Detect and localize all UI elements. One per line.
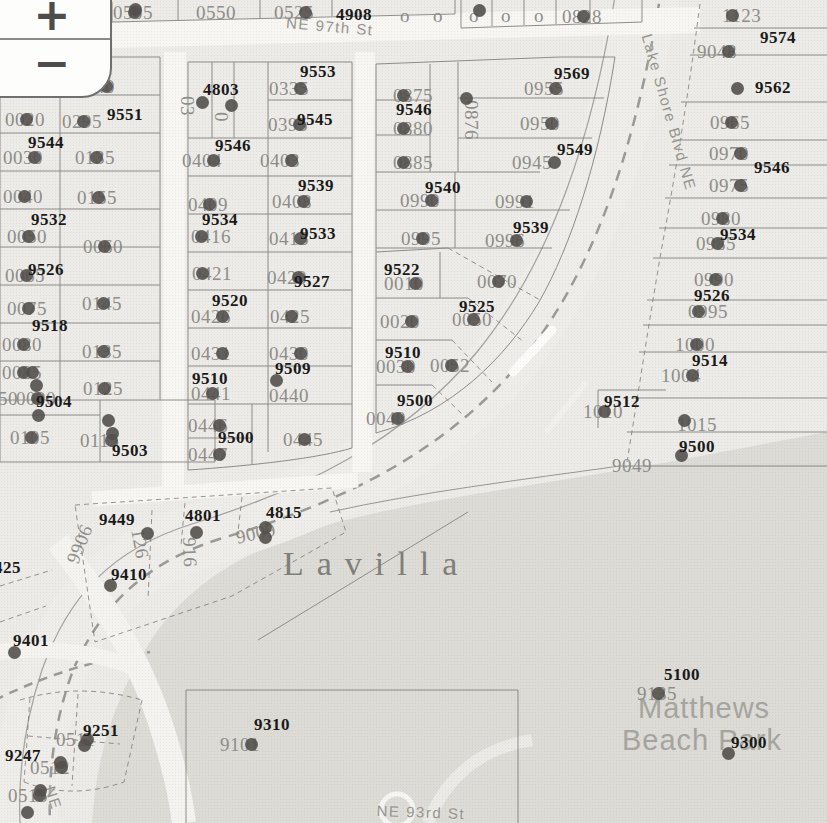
parcel-marker[interactable] <box>285 310 298 323</box>
lot-label-0876: 0876 <box>460 100 482 140</box>
address-label-9546: 9546 <box>396 100 432 120</box>
address-label-9539: 9539 <box>298 176 334 196</box>
parcel-marker[interactable] <box>245 738 258 751</box>
address-label-9514: 9514 <box>692 351 728 371</box>
parcel-marker[interactable] <box>196 267 209 280</box>
address-label-9545: 9545 <box>297 110 333 130</box>
address-label-9551: 9551 <box>107 105 143 125</box>
address-label-9500: 9500 <box>679 437 715 457</box>
parcel-marker[interactable] <box>692 305 705 318</box>
parcel-marker[interactable] <box>445 359 458 372</box>
parcel-marker[interactable] <box>652 687 665 700</box>
parcel-marker[interactable] <box>195 230 208 243</box>
parcel-marker[interactable] <box>473 4 486 17</box>
parcel-marker[interactable] <box>21 806 34 819</box>
parcel-marker[interactable] <box>97 297 110 310</box>
address-label-4908: 4908 <box>336 5 372 25</box>
parcel-marker[interactable] <box>545 117 558 130</box>
parcel-marker[interactable] <box>216 347 229 360</box>
parcel-marker[interactable] <box>22 302 35 315</box>
parcel-marker[interactable] <box>297 195 310 208</box>
lot-label-o: o <box>534 5 544 27</box>
parcel-marker[interactable] <box>734 179 747 192</box>
parcel-marker[interactable] <box>294 82 307 95</box>
parcel-marker[interactable] <box>25 431 38 444</box>
parcel-marker[interactable] <box>30 379 43 392</box>
address-label-4803: 4803 <box>203 80 239 100</box>
address-label-9520: 9520 <box>212 291 248 311</box>
parcel-marker[interactable] <box>54 756 67 769</box>
parcel-marker[interactable] <box>97 345 110 358</box>
address-label-9546: 9546 <box>754 158 790 178</box>
parcel-marker[interactable] <box>397 156 410 169</box>
parcel-marker[interactable] <box>722 45 735 58</box>
address-label-9526: 9526 <box>694 286 730 306</box>
parcel-marker[interactable] <box>20 113 33 126</box>
lot-label-03: 03 <box>176 96 198 116</box>
parcel-marker[interactable] <box>716 212 729 225</box>
lot-label-0: 0 <box>210 112 232 122</box>
parcel-marker[interactable] <box>678 414 691 427</box>
lot-label-916: 916 <box>178 537 201 568</box>
parcel-marker[interactable] <box>577 10 590 23</box>
parcel-marker[interactable] <box>18 190 31 203</box>
parcel-marker[interactable] <box>397 122 410 135</box>
parcel-marker[interactable] <box>726 9 739 22</box>
address-label-9527: 9527 <box>294 272 330 292</box>
parcel-marker[interactable] <box>690 338 703 351</box>
parcel-marker[interactable] <box>298 433 311 446</box>
parcel-marker[interactable] <box>405 315 418 328</box>
address-label-9500: 9500 <box>218 428 254 448</box>
address-label-9534: 9534 <box>720 225 756 245</box>
parcel-marker[interactable] <box>106 427 119 440</box>
parcel-marker[interactable] <box>731 82 744 95</box>
parcel-marker[interactable] <box>709 273 722 286</box>
address-label-9522: 9522 <box>384 260 420 280</box>
map-canvas[interactable]: 4908955295534803955195459544954695699546… <box>0 0 827 823</box>
parcel-marker[interactable] <box>77 115 90 128</box>
address-label-9526: 9526 <box>28 260 64 280</box>
place-label: Lavilla <box>283 545 470 583</box>
lot-label-o: o <box>433 5 443 27</box>
address-label-9533: 9533 <box>300 224 336 244</box>
address-label-9410: 9410 <box>111 565 147 585</box>
parcel-marker[interactable] <box>17 338 30 351</box>
address-label-9569: 9569 <box>554 64 590 84</box>
street-label: NE 93rd St <box>376 802 465 822</box>
address-label-9510: 9510 <box>385 343 421 363</box>
address-label-9574: 9574 <box>760 28 796 48</box>
parcel-marker[interactable] <box>416 232 429 245</box>
parcel-marker[interactable] <box>141 527 154 540</box>
address-label-9504: 9504 <box>36 392 72 412</box>
lot-label-o: o <box>400 5 410 27</box>
address-label-9518: 9518 <box>32 316 68 336</box>
address-label-9540: 9540 <box>425 178 461 198</box>
address-label-9401: 9401 <box>13 631 49 651</box>
address-label-9549: 9549 <box>557 140 593 160</box>
parcel-marker[interactable] <box>129 3 142 16</box>
zoom-out-button[interactable]: − <box>0 40 110 86</box>
address-label-425: 425 <box>0 558 21 578</box>
parcel-marker[interactable] <box>34 784 47 797</box>
lot-label-0550: 0550 <box>196 2 236 24</box>
lot-label-0440: 0440 <box>269 385 309 407</box>
address-label-9509: 9509 <box>275 359 311 379</box>
parcel-marker[interactable] <box>725 116 738 129</box>
lot-label-9049: 9049 <box>612 455 652 477</box>
address-label-4801: 4801 <box>185 506 221 526</box>
address-label-9544: 9544 <box>28 133 64 153</box>
address-label-9512: 9512 <box>604 392 640 412</box>
address-label-9534: 9534 <box>202 210 238 230</box>
lot-label-0945: 0945 <box>512 152 552 174</box>
lot-label-o: o <box>501 5 511 27</box>
parcel-marker[interactable] <box>92 191 105 204</box>
address-label-9562: 9562 <box>755 78 791 98</box>
map-zoom-control: + − <box>0 0 112 98</box>
parcel-marker[interactable] <box>98 240 111 253</box>
parcel-marker[interactable] <box>299 6 312 19</box>
address-label-9251: 9251 <box>83 721 119 741</box>
parcel-marker[interactable] <box>102 414 115 427</box>
address-label-5100: 5100 <box>664 665 700 685</box>
address-label-9539: 9539 <box>513 218 549 238</box>
parcel-marker[interactable] <box>391 412 404 425</box>
parcel-marker[interactable] <box>190 526 203 539</box>
parcel-marker[interactable] <box>225 99 238 112</box>
parcel-marker[interactable] <box>460 92 473 105</box>
address-label-9532: 9532 <box>31 210 67 230</box>
address-label-9449: 9449 <box>99 510 135 530</box>
address-label-9546: 9546 <box>215 136 251 156</box>
parcel-marker[interactable] <box>285 154 298 167</box>
address-label-9525: 9525 <box>459 297 495 317</box>
parcel-marker[interactable] <box>213 448 226 461</box>
address-label-9300: 9300 <box>731 733 767 753</box>
address-label-9510: 9510 <box>192 369 228 389</box>
address-label-9500: 9500 <box>397 391 433 411</box>
parcel-marker[interactable] <box>26 366 39 379</box>
parcel-marker[interactable] <box>216 310 229 323</box>
address-label-9503: 9503 <box>112 441 148 461</box>
address-label-4815: 4815 <box>266 503 302 523</box>
parcel-marker[interactable] <box>22 230 35 243</box>
parcel-marker[interactable] <box>98 382 111 395</box>
address-label-9247: 9247 <box>5 746 41 766</box>
parcel-marker[interactable] <box>734 147 747 160</box>
parcel-marker[interactable] <box>90 151 103 164</box>
zoom-in-button[interactable]: + <box>0 0 110 38</box>
parcel-marker[interactable] <box>492 275 505 288</box>
address-label-9553: 9553 <box>300 62 336 82</box>
parcel-marker[interactable] <box>520 195 533 208</box>
address-label-9310: 9310 <box>254 715 290 735</box>
